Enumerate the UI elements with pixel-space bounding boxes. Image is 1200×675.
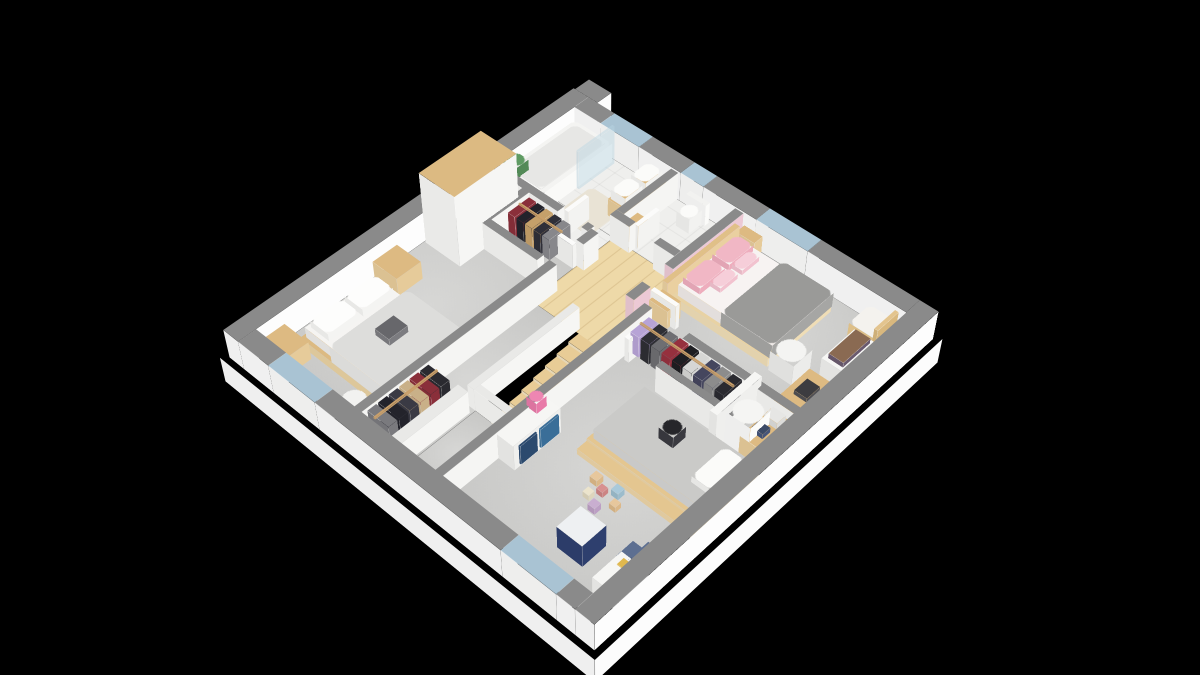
wall-door-34-east [573,243,577,269]
wall-int-18-east [629,222,636,253]
floor-plan-render [0,0,1200,675]
